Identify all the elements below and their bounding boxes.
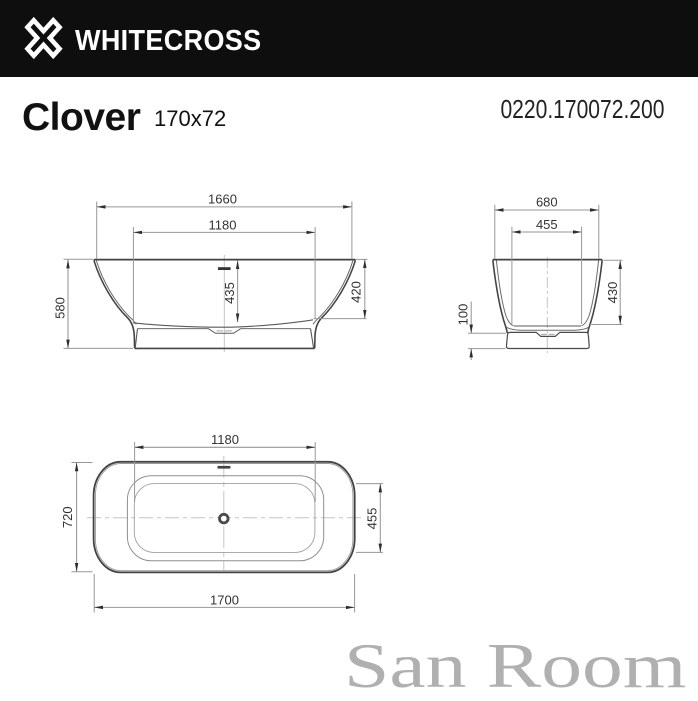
svg-text:1660: 1660: [208, 192, 237, 207]
svg-text:580: 580: [53, 297, 68, 319]
svg-text:455: 455: [536, 217, 558, 232]
svg-text:680: 680: [536, 195, 558, 210]
svg-text:1180: 1180: [211, 432, 239, 447]
svg-text:455: 455: [364, 508, 379, 530]
svg-text:435: 435: [222, 282, 237, 304]
svg-text:1180: 1180: [209, 217, 237, 232]
svg-text:420: 420: [349, 281, 364, 303]
svg-text:100: 100: [456, 304, 471, 326]
svg-text:430: 430: [605, 282, 620, 304]
svg-text:720: 720: [60, 506, 75, 528]
svg-text:1700: 1700: [210, 592, 239, 607]
